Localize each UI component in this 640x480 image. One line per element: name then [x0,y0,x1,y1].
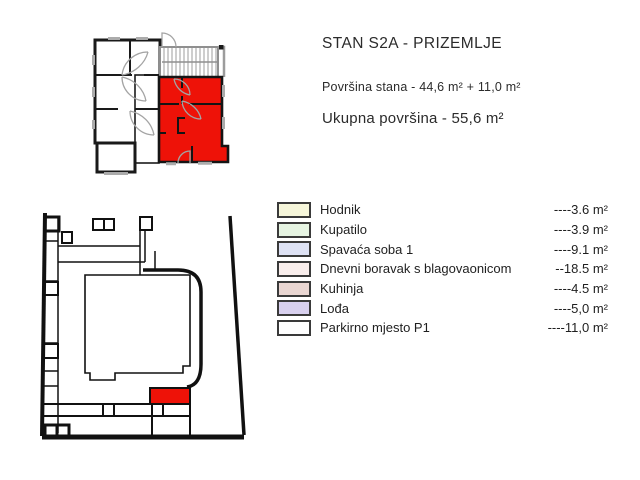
legend-swatch [277,320,311,336]
legend-swatch [277,241,311,257]
legend-swatch [277,300,311,316]
parking-spot-p1-shape [150,388,190,404]
total-area: Ukupna površina - 55,6 m² [322,110,504,127]
page-title: STAN S2A - PRIZEMLJE [322,35,502,53]
legend-swatch [277,222,311,238]
building-footprint [85,275,190,380]
legend-swatch [277,261,311,277]
legend-swatch [277,202,311,218]
legend-label: Dnevni boravak s blagovaonicom [320,261,555,276]
highlighted-unit-shape [159,77,228,162]
legend-row: Spavaća soba 1 ----9.1 m² [277,239,608,259]
driveway-curve [143,270,201,387]
legend-value: ----9.1 m² [554,242,608,257]
legend-label: Spavaća soba 1 [320,242,554,257]
apartment-floor-plan [78,25,253,185]
legend-value: ----11,0 m² [548,320,608,335]
legend-value: --18.5 m² [555,261,608,276]
legend-label: Kuhinja [320,281,554,296]
legend-label: Kupatilo [320,222,554,237]
legend-value: ----5,0 m² [554,301,608,316]
legend-row: Kuhinja ----4.5 m² [277,279,608,299]
area-summary: Površina stana - 44,6 m² + 11,0 m² [322,80,521,94]
site-plan [30,203,260,448]
legend-row: Hodnik ----3.6 m² [277,200,608,220]
document-page: { "header": { "title": "STAN S2A - PRIZE… [0,0,640,480]
corridor-outline [135,75,159,163]
legend-row: Lođa ----5,0 m² [277,298,608,318]
legend-swatch [277,281,311,297]
legend-label: Parkirno mjesto P1 [320,320,548,335]
legend-row: Parkirno mjesto P1 ----11,0 m² [277,318,608,338]
neighbor-balcony [97,143,135,172]
legend-value: ----4.5 m² [554,281,608,296]
legend-label: Lođa [320,301,554,316]
legend: Hodnik ----3.6 m² Kupatilo ----3.9 m² Sp… [277,200,608,338]
column-mark [219,45,224,50]
legend-label: Hodnik [320,202,554,217]
legend-row: Dnevni boravak s blagovaonicom --18.5 m² [277,259,608,279]
legend-value: ----3.9 m² [554,222,608,237]
legend-value: ----3.6 m² [554,202,608,217]
legend-row: Kupatilo ----3.9 m² [277,220,608,240]
